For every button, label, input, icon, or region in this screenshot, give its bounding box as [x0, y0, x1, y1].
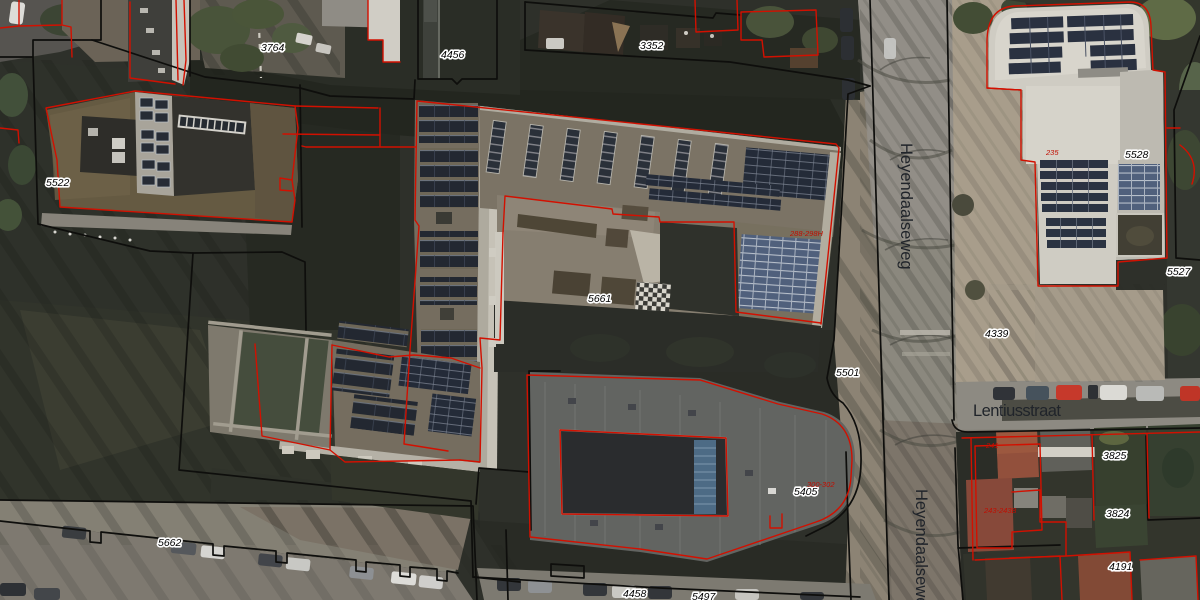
- svg-text:4456: 4456: [441, 49, 465, 61]
- svg-text:3825: 3825: [1103, 450, 1127, 462]
- svg-text:288-298H: 288-298H: [789, 229, 824, 238]
- svg-text:Lentiusstraat: Lentiusstraat: [973, 402, 1061, 420]
- svg-text:243-243B: 243-243B: [983, 506, 1017, 515]
- svg-text:3352: 3352: [640, 40, 664, 52]
- svg-text:5522: 5522: [46, 177, 70, 189]
- svg-text:5501: 5501: [836, 367, 859, 379]
- svg-text:Heyendaalseweg: Heyendaalseweg: [897, 143, 915, 270]
- svg-text:4458: 4458: [623, 588, 647, 600]
- svg-text:241: 241: [985, 441, 999, 450]
- svg-text:3764: 3764: [261, 42, 285, 54]
- svg-text:5662: 5662: [158, 537, 182, 549]
- svg-text:3824: 3824: [1106, 508, 1130, 520]
- svg-text:5527: 5527: [1167, 266, 1192, 278]
- svg-text:4339: 4339: [985, 328, 1009, 340]
- svg-text:235: 235: [1045, 148, 1059, 157]
- svg-text:300-302: 300-302: [807, 480, 835, 489]
- svg-text:5661: 5661: [588, 293, 611, 305]
- svg-text:4191: 4191: [1109, 561, 1132, 573]
- svg-text:Heyendaalseweg: Heyendaalseweg: [912, 489, 930, 600]
- svg-text:5497: 5497: [692, 591, 717, 600]
- svg-text:5528: 5528: [1125, 149, 1149, 161]
